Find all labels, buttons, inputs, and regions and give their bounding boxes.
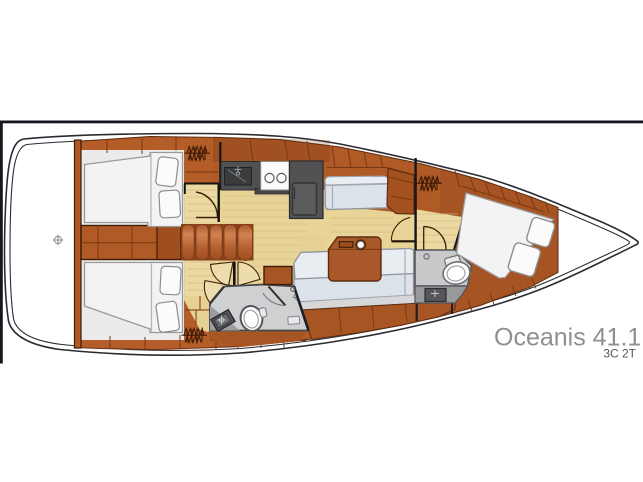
svg-text:3C 2T: 3C 2T [603,347,636,361]
